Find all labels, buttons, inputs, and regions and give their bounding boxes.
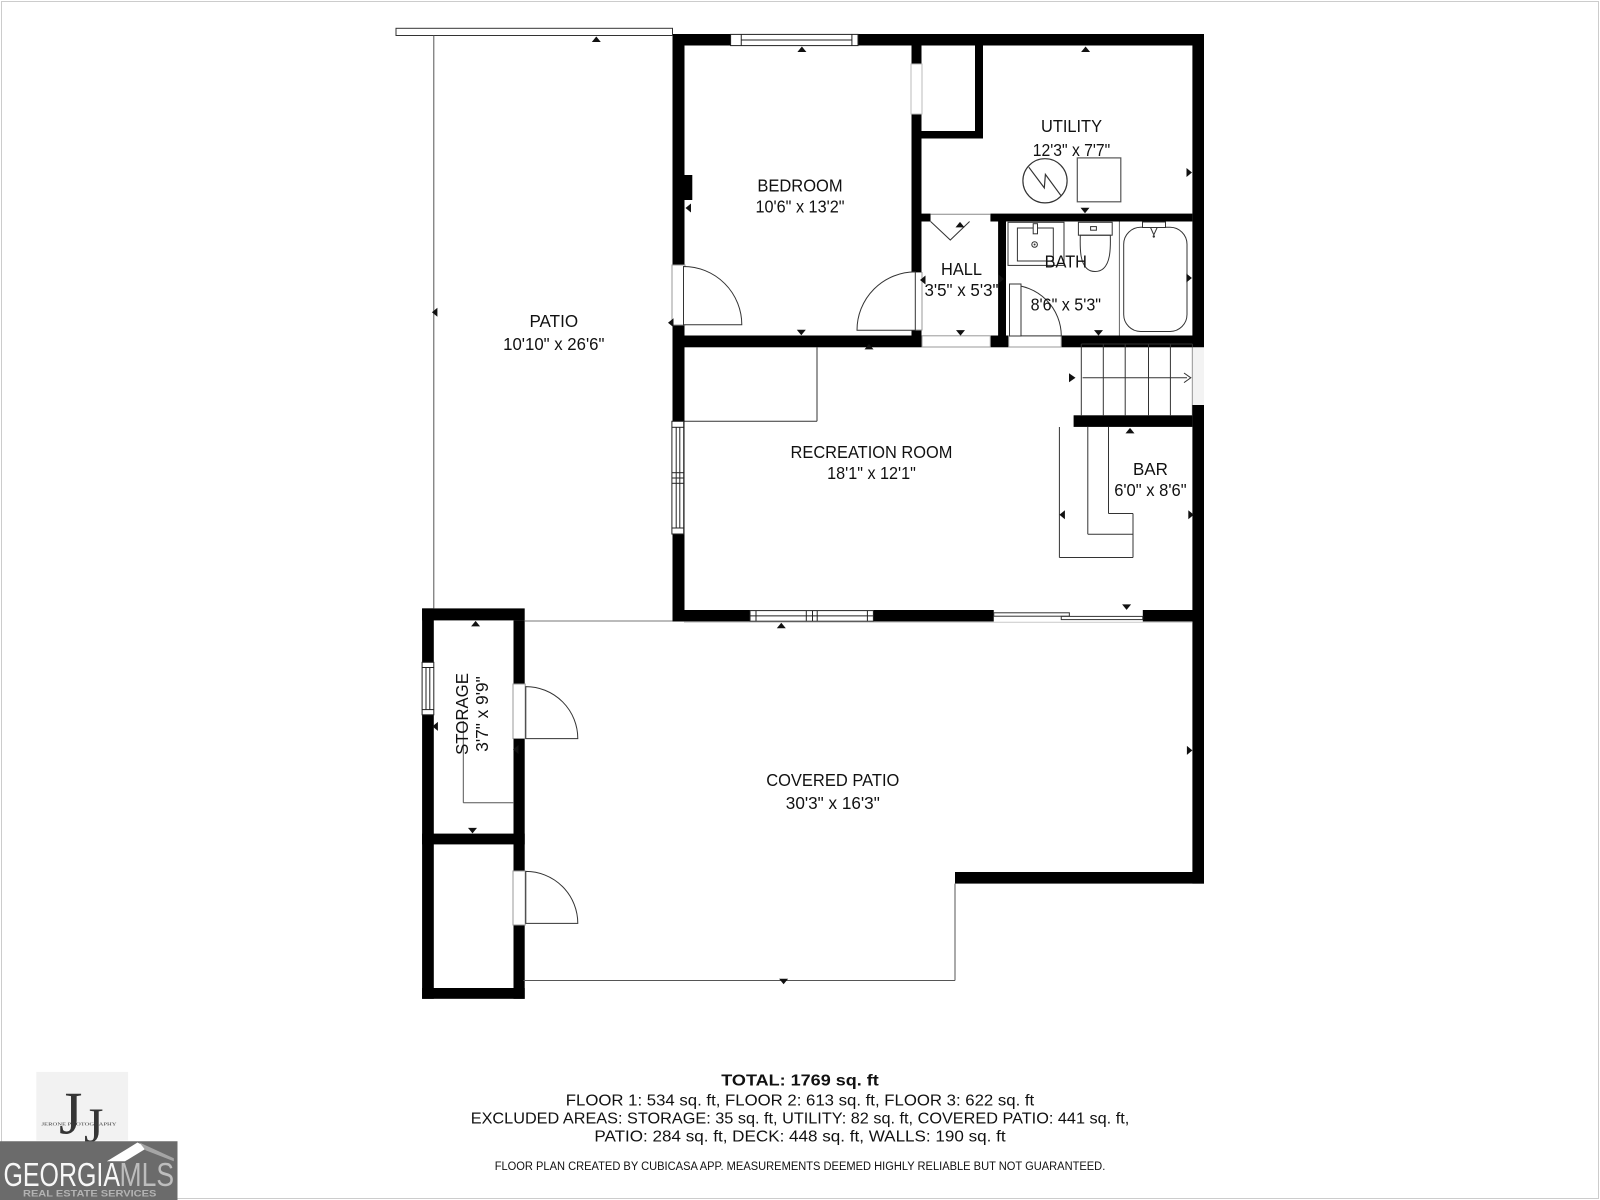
svg-text:18'1" x 12'1": 18'1" x 12'1" bbox=[827, 463, 916, 483]
svg-text:HALL: HALL bbox=[941, 259, 982, 279]
svg-text:BEDROOM: BEDROOM bbox=[757, 175, 842, 195]
svg-text:FLOOR 1: 534 sq. ft, FLOOR 2:: FLOOR 1: 534 sq. ft, FLOOR 2: 613 sq. ft… bbox=[566, 1092, 1035, 1109]
svg-text:EXCLUDED AREAS: STORAGE: 35 sq: EXCLUDED AREAS: STORAGE: 35 sq. ft, UTIL… bbox=[471, 1110, 1130, 1127]
svg-text:STORAGE: STORAGE bbox=[452, 673, 472, 755]
svg-text:J: J bbox=[59, 1081, 82, 1147]
svg-text:RECREATION ROOM: RECREATION ROOM bbox=[791, 442, 953, 462]
svg-text:3'7" x 9'9": 3'7" x 9'9" bbox=[472, 676, 492, 752]
svg-text:12'3" x 7'7": 12'3" x 7'7" bbox=[1033, 140, 1111, 160]
svg-text:3'5" x 5'3": 3'5" x 5'3" bbox=[925, 280, 999, 300]
svg-text:FLOOR PLAN CREATED BY CUBICASA: FLOOR PLAN CREATED BY CUBICASA APP. MEAS… bbox=[495, 1159, 1106, 1173]
svg-text:30'3" x 16'3": 30'3" x 16'3" bbox=[786, 793, 880, 813]
svg-text:10'10" x 26'6": 10'10" x 26'6" bbox=[503, 334, 604, 354]
svg-text:BAR: BAR bbox=[1133, 459, 1168, 479]
svg-text:10'6" x 13'2": 10'6" x 13'2" bbox=[756, 197, 845, 217]
svg-text:REAL ESTATE SERVICES: REAL ESTATE SERVICES bbox=[23, 1188, 156, 1198]
svg-text:8'6" x 5'3": 8'6" x 5'3" bbox=[1031, 295, 1101, 315]
svg-text:JERONE PHOTOGRAPHY: JERONE PHOTOGRAPHY bbox=[42, 1122, 118, 1127]
svg-text:TOTAL: 1769 sq. ft: TOTAL: 1769 sq. ft bbox=[721, 1073, 879, 1090]
svg-text:BATH: BATH bbox=[1045, 252, 1087, 272]
svg-text:PATIO: 284 sq. ft, DECK: 448 s: PATIO: 284 sq. ft, DECK: 448 sq. ft, WAL… bbox=[594, 1128, 1006, 1145]
svg-text:UTILITY: UTILITY bbox=[1041, 116, 1102, 136]
svg-text:COVERED PATIO: COVERED PATIO bbox=[766, 770, 899, 790]
svg-text:6'0" x 8'6": 6'0" x 8'6" bbox=[1114, 480, 1186, 500]
svg-text:PATIO: PATIO bbox=[529, 311, 578, 331]
